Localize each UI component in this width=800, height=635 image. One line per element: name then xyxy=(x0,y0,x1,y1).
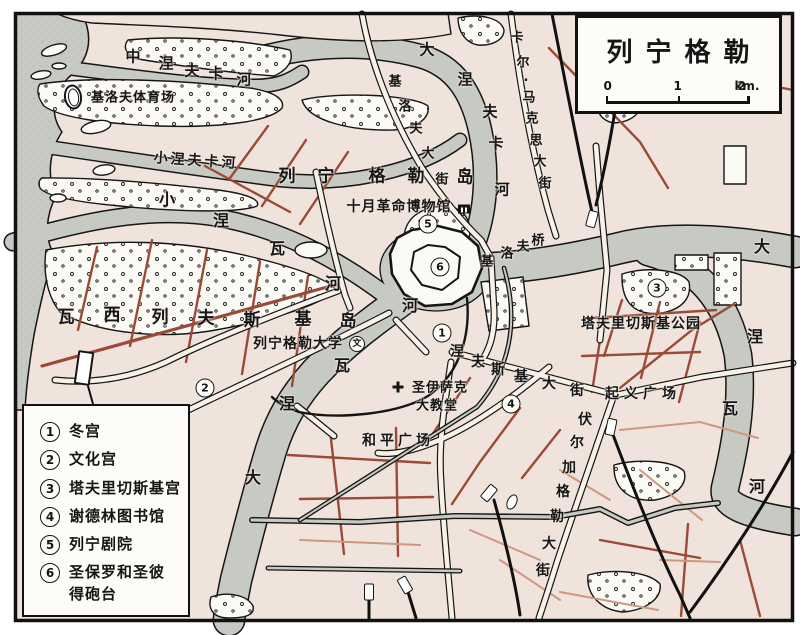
legend-item-4: 4谢德林图书馆 xyxy=(40,506,188,528)
museum-building-icon xyxy=(458,205,470,214)
peace-square-label: 和平广场 xyxy=(362,434,434,448)
legend-marker-2: 2 xyxy=(40,450,60,470)
legend-marker-1: 1 xyxy=(40,422,60,442)
scale-tick-0: 0 xyxy=(604,79,612,93)
station-icon xyxy=(396,575,413,595)
station-icon xyxy=(604,418,617,437)
stadium-icon-small xyxy=(504,493,520,512)
legend-item-3: 3塔夫里切斯基宫 xyxy=(40,478,188,500)
leningrad-map-page: 基洛夫体育场小涅夫卡河十月革命博物馆塔夫里切斯基公园列宁格勒大学圣伊萨克大教堂起… xyxy=(0,0,800,635)
stadium-icon xyxy=(62,83,83,110)
legend-marker-4: 4 xyxy=(40,507,60,527)
isaac-cathedral-label-line2: 大教堂 xyxy=(416,400,458,413)
legend-item-2: 2文化宫 xyxy=(40,449,188,471)
legend-marker-3: 3 xyxy=(40,479,60,499)
station-icon xyxy=(364,584,374,601)
legend-item-6: 6圣保罗和圣彼 得砲台 xyxy=(40,562,188,606)
title-box: 列宁格勒 012 km. xyxy=(575,15,782,114)
october-museum-label: 十月革命博物馆 xyxy=(347,200,452,214)
legend-label-3: 塔夫里切斯基宫 xyxy=(69,478,181,500)
scale-unit: km. xyxy=(734,79,759,93)
legend-label-2: 文化宫 xyxy=(69,449,117,471)
legend-marker-5: 5 xyxy=(40,535,60,555)
scale-bar-line xyxy=(606,96,750,104)
legend-box: 1冬宫2文化宫3塔夫里切斯基宫4谢德林图书馆5列宁剧院6圣保罗和圣彼 得砲台 xyxy=(22,404,190,617)
legend-label-5: 列宁剧院 xyxy=(69,534,133,556)
uprising-square-label: 起义广场 xyxy=(605,387,681,401)
station-icon xyxy=(585,209,599,228)
legend-label-6: 圣保罗和圣彼 得砲台 xyxy=(69,562,165,606)
legend-items: 1冬宫2文化宫3塔夫里切斯基宫4谢德林图书馆5列宁剧院6圣保罗和圣彼 得砲台 xyxy=(40,421,188,606)
legend-item-5: 5列宁剧院 xyxy=(40,534,188,556)
map-marker-6: 6 xyxy=(431,258,450,277)
university-symbol: 文 xyxy=(349,336,365,352)
leningrad-university-label: 列宁格勒大学 xyxy=(253,337,343,351)
harbor-dock-icon xyxy=(74,350,95,386)
malaya-nevka-river-label: 小涅夫卡河 xyxy=(153,151,239,171)
legend-marker-6: 6 xyxy=(40,563,60,583)
tavrichesky-park-label: 塔夫里切斯基公园 xyxy=(581,317,701,331)
scale-bar: 012 km. xyxy=(604,79,754,109)
station-icon xyxy=(480,483,499,502)
map-marker-5: 5 xyxy=(419,215,438,234)
legend-item-1: 1冬宫 xyxy=(40,421,188,443)
isaac-cathedral-label-line1: 圣伊萨克 xyxy=(412,382,468,395)
map-marker-2: 2 xyxy=(196,379,215,398)
map-marker-3: 3 xyxy=(648,279,667,298)
map-title: 列宁格勒 xyxy=(590,32,779,69)
cathedral-cross-icon xyxy=(393,382,404,393)
legend-label-4: 谢德林图书馆 xyxy=(69,506,165,528)
scale-tick-1: 1 xyxy=(674,79,682,93)
kirov-stadium-label: 基洛夫体育场 xyxy=(91,92,175,105)
map-marker-1: 1 xyxy=(433,324,452,343)
legend-label-1: 冬宫 xyxy=(69,421,101,443)
map-marker-4: 4 xyxy=(502,395,521,414)
